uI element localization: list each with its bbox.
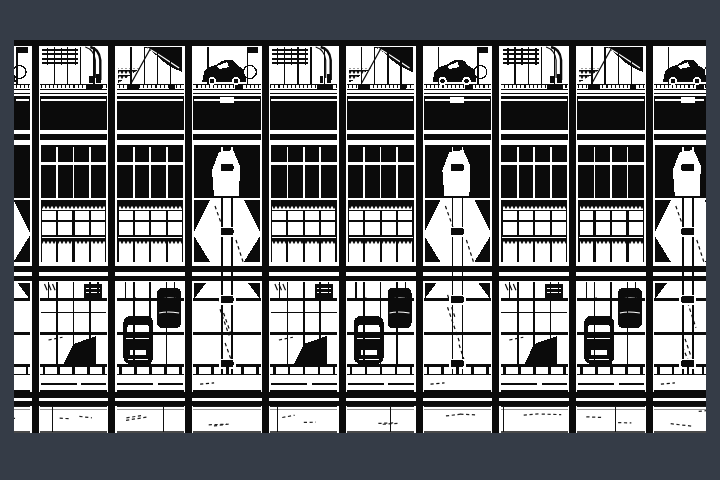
image-viewer-canvas (0, 0, 720, 480)
building-elevation-drawing (0, 0, 720, 480)
